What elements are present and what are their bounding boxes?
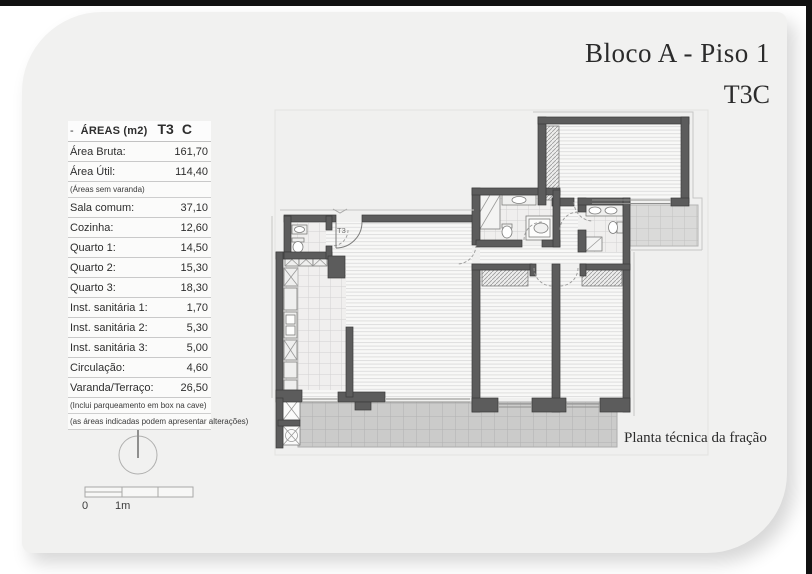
table-row: Área Útil: 114,40 [68,162,211,182]
top-border [0,0,812,6]
table-note: (Áreas sem varanda) [68,182,211,198]
table-row: Varanda/Terraço: 26,50 [68,378,211,398]
header-dash: - [70,125,74,137]
right-border [806,0,812,574]
header-variant: C [182,121,192,137]
table-row: Área Bruta: 161,70 [68,142,211,162]
table-row: Circulação: 4,60 [68,358,211,378]
table-row: Quarto 2: 15,30 [68,258,211,278]
table-row: Sala comum: 37,10 [68,198,211,218]
table-row: Quarto 3: 18,30 [68,278,211,298]
table-row: Inst. sanitária 1: 1,70 [68,298,211,318]
table-row: Inst. sanitária 3: 5,00 [68,338,211,358]
areas-table-header: - ÁREAS (m2) T3 C [68,121,211,142]
title-block: Bloco A - Piso 1 T3C [585,38,770,110]
table-note: (Inclui parqueamento em box na cave) [68,398,211,414]
table-row: Cozinha: 12,60 [68,218,211,238]
table-row: Quarto 1: 14,50 [68,238,211,258]
header-type: T3 [157,121,173,137]
table-note: (as áreas indicadas podem apresentar alt… [68,414,211,430]
page-subtitle: T3C [585,80,770,110]
table-row: Inst. sanitária 2: 5,30 [68,318,211,338]
brochure-page: T3 N 0 1m Bloco A - Piso 1 T3C Planta té… [0,0,812,574]
areas-table: - ÁREAS (m2) T3 C Área Bruta: 161,70 Áre… [68,121,211,430]
plan-caption: Planta técnica da fração [624,430,767,447]
page-title: Bloco A - Piso 1 [585,38,770,69]
header-title: ÁREAS (m2) [81,125,148,137]
